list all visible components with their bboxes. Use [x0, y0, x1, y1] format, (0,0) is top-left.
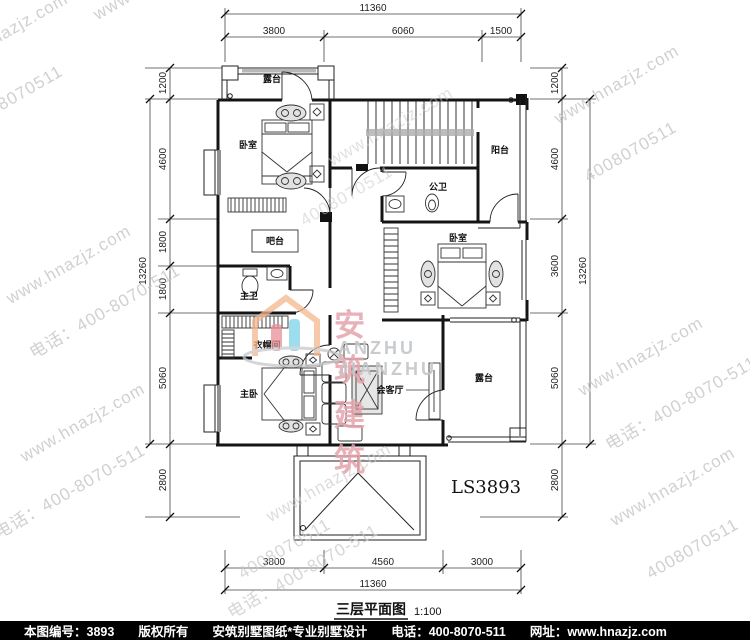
dim-right-total: 13260	[578, 257, 589, 285]
dim-left-seg: 1800	[158, 230, 169, 253]
room-labels: 露台 卧室 阳台 公卫 吧台 主卫 衣帽间 卧室 主卧 会客厅 露台	[239, 73, 509, 399]
dim-right-seg: 4600	[550, 147, 561, 170]
footer-phone: 电话：400-8070-511	[391, 621, 506, 640]
footer-website: 网址：www.hnazjz.com	[530, 621, 667, 640]
dim-bottom-seg: 3000	[471, 557, 494, 568]
drawing-title-text: 三层平面图	[336, 601, 406, 617]
dim-left-seg: 1200	[158, 71, 169, 94]
dimension-labels: 11360 3800 6060 1500 1200 4600 1800 1800…	[138, 3, 589, 590]
furniture	[222, 104, 503, 441]
room-label-bath-master: 主卫	[240, 290, 258, 301]
room-label-terrace-se: 露台	[475, 372, 493, 383]
footer-copyright: 版权所有	[138, 621, 188, 640]
dim-right-seg: 5060	[550, 366, 561, 389]
footer-drawing-number: 本图编号：3893	[24, 621, 114, 640]
dim-right-seg: 2800	[550, 468, 561, 491]
roof-outline	[294, 456, 426, 540]
room-label-bedroom-nw: 卧室	[239, 139, 257, 150]
drawing-scale: 1:100	[414, 606, 442, 618]
staircase	[366, 100, 474, 164]
room-label-bar: 吧台	[266, 235, 284, 246]
dim-right-seg: 1200	[550, 71, 561, 94]
room-label-balcony-e: 阳台	[491, 144, 509, 155]
dim-bottom-seg: 3800	[263, 557, 286, 568]
dim-top-seg: 3800	[263, 26, 286, 37]
room-label-family-room: 会客厅	[376, 384, 403, 395]
dim-top-total: 11360	[359, 3, 387, 14]
drawing-title: 三层平面图 1:100	[334, 601, 442, 619]
footer-bar: 本图编号：3893 版权所有 安筑别墅图纸*专业别墅设计 电话：400-8070…	[0, 621, 750, 640]
footer-slogan: 安筑别墅图纸*专业别墅设计	[212, 621, 367, 640]
room-label-bath-public: 公卫	[429, 182, 447, 192]
structural-columns	[320, 94, 527, 222]
room-label-bedroom-e: 卧室	[449, 232, 467, 243]
dim-left-seg: 4600	[158, 147, 169, 170]
room-label-cloakroom: 衣帽间	[253, 339, 280, 350]
floor-plan-drawing: 11360 3800 6060 1500 1200 4600 1800 1800…	[0, 0, 750, 622]
room-label-terrace-top: 露台	[263, 73, 281, 84]
dim-left-seg: 1800	[158, 277, 169, 300]
dim-right-seg: 3600	[550, 254, 561, 277]
dim-left-total: 13260	[138, 257, 149, 285]
dim-left-seg: 2800	[158, 468, 169, 491]
dim-left-seg: 5060	[158, 366, 169, 389]
dim-bottom-total: 11360	[359, 579, 387, 590]
floor-plan-page: { "watermark": { "url": "www.hnazjz.com"…	[0, 0, 750, 640]
room-label-bedroom-master: 主卧	[240, 388, 258, 399]
dim-top-seg: 6060	[392, 26, 415, 37]
dim-top-seg: 1500	[490, 26, 513, 37]
dim-bottom-seg: 4560	[372, 557, 395, 568]
plan-code: LS3893	[451, 477, 521, 498]
